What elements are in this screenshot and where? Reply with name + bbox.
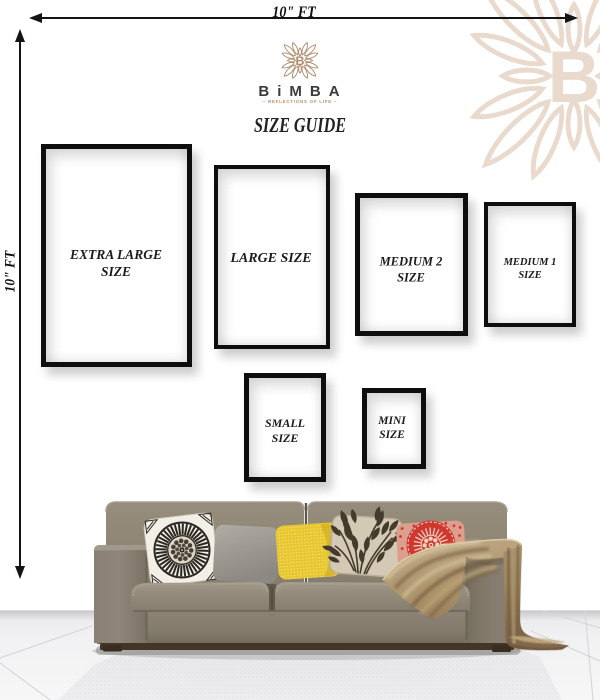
svg-text:B: B [548,37,600,118]
svg-text:B: B [296,54,305,68]
